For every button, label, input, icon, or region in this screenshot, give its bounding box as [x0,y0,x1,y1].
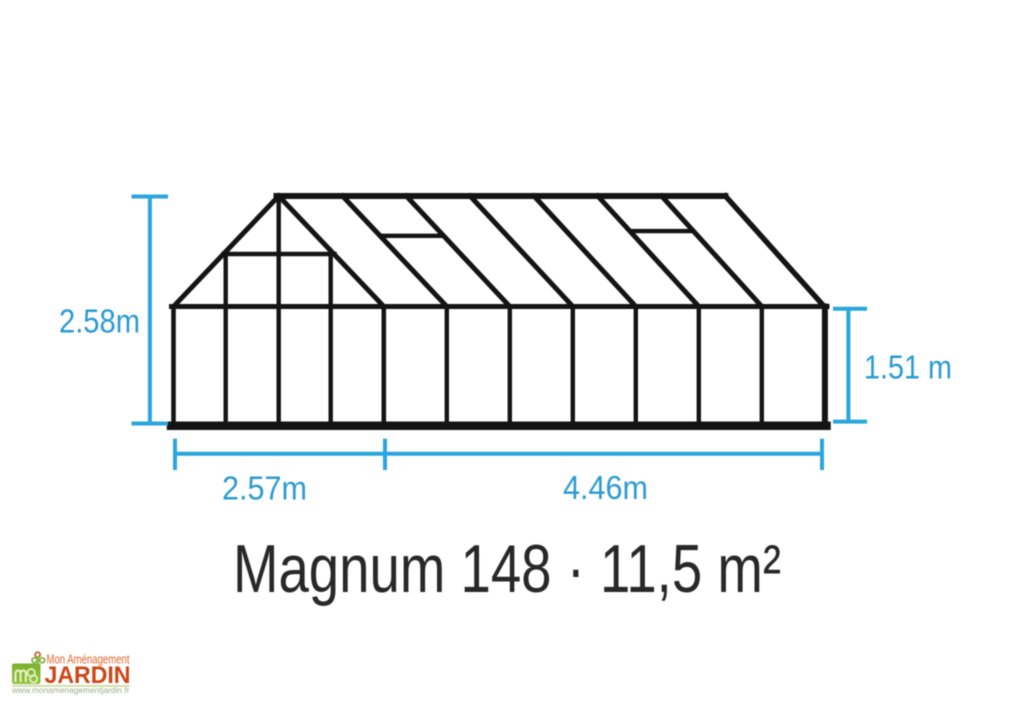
svg-text:4.46m: 4.46m [563,469,648,506]
svg-text:1.51 m: 1.51 m [864,349,952,386]
svg-text:2.58m: 2.58m [59,303,140,340]
svg-text:Magnum 148 · 11,5 m²: Magnum 148 · 11,5 m² [233,531,781,607]
svg-text:www.monamenagementjardin.fr: www.monamenagementjardin.fr [11,685,130,695]
svg-text:2.57m: 2.57m [222,470,307,507]
